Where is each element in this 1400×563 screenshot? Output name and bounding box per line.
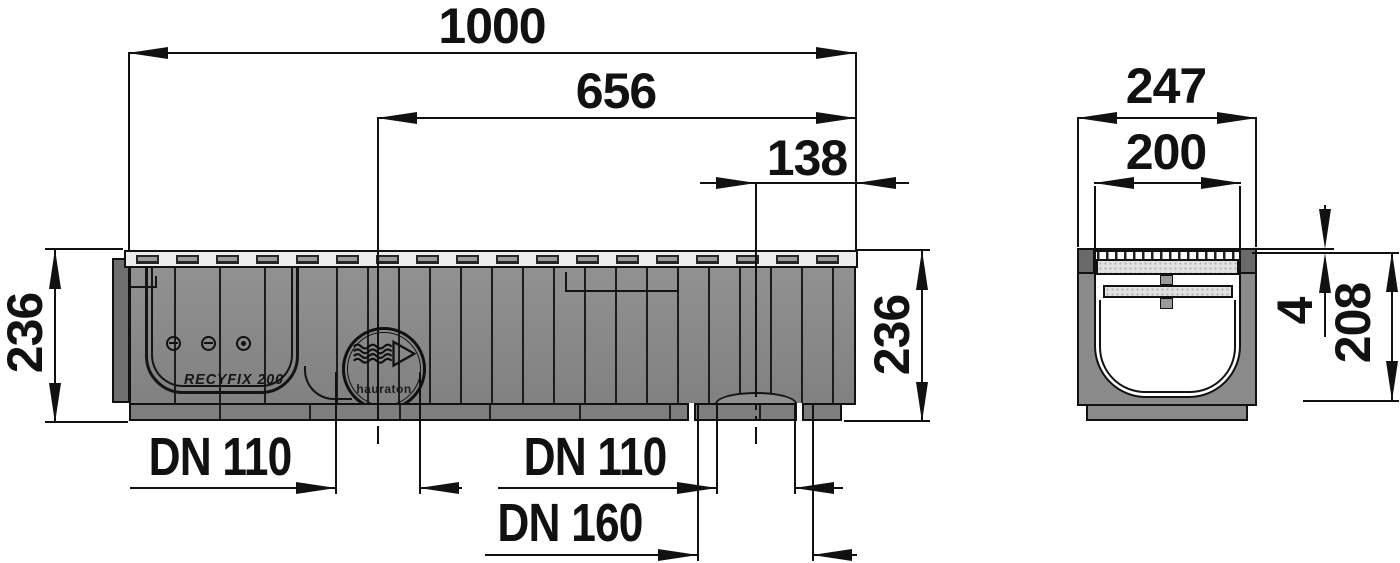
hauraton-logo-text: hauraton [345, 382, 423, 396]
dim-247-label: 247 [1126, 61, 1206, 111]
outlet-centerline-dashed [755, 390, 757, 421]
end-step-outline [131, 276, 157, 288]
arrowhead-icon [49, 249, 61, 289]
arrowhead-icon [49, 383, 61, 423]
arrowhead-icon [812, 549, 852, 561]
screw-slot [169, 342, 178, 344]
dim-200-label: 200 [1126, 127, 1206, 177]
coupling-step-outline [565, 272, 679, 292]
arrowhead-icon [794, 482, 834, 494]
arrowhead-icon [816, 112, 856, 124]
outlet-centerline-right [755, 182, 757, 390]
arrowhead-icon [916, 382, 928, 422]
grate-strip [124, 250, 858, 268]
wave-arrow-icon [350, 339, 420, 375]
dim-208-label: 208 [1328, 283, 1378, 363]
arrowhead-icon [1319, 209, 1331, 249]
dim-236-left-label: 236 [0, 293, 50, 373]
arrowhead-icon [1386, 252, 1398, 292]
arrowhead-icon [1386, 361, 1398, 401]
outlet-centerline-left [377, 117, 379, 421]
technical-drawing-canvas: hauraton RECYFIX 200 [0, 0, 1400, 563]
section-grate-tab [1160, 275, 1173, 285]
base-strip [129, 403, 842, 421]
screw-icon [236, 336, 251, 351]
tick-line [1303, 400, 1399, 402]
dim-total-length-label: 1000 [438, 1, 545, 51]
arrowhead-icon [1201, 177, 1241, 189]
section-liner-line [1099, 300, 1236, 393]
end-cap-left [112, 258, 130, 403]
centerline-tick [755, 427, 757, 444]
extension-line [1077, 119, 1079, 247]
section-grate-teeth [1097, 252, 1238, 259]
recessed-panel-inner-line [151, 266, 293, 387]
section-locking-pin [1160, 298, 1173, 309]
extension-line [335, 372, 337, 494]
arrowhead-icon [916, 250, 928, 290]
section-foot [1086, 404, 1248, 421]
extension-line [419, 372, 421, 494]
product-name-text: RECYFIX 200 [184, 371, 284, 388]
dn110-bottom-label: DN 110 [524, 430, 667, 484]
screw-slot [204, 342, 213, 344]
dim-4-label: 4 [1270, 298, 1320, 325]
screw-dot [241, 341, 246, 346]
section-locking-bar [1103, 285, 1233, 298]
socket-notch-left [687, 403, 696, 421]
arrowhead-icon [1077, 112, 1117, 124]
screw-icon [201, 336, 216, 351]
arrowhead-icon [1217, 112, 1257, 124]
arrowhead-icon [716, 177, 756, 189]
extension-line [1255, 119, 1257, 247]
centerline-tick [377, 426, 379, 444]
base-strip-dividers [131, 405, 840, 419]
arrowhead-icon [816, 47, 856, 59]
extension-line [1239, 186, 1241, 250]
extension-line [128, 52, 130, 250]
extension-line [794, 404, 796, 494]
dn160-label: DN 160 [497, 496, 642, 550]
section-grate [1096, 259, 1239, 275]
hauraton-logo: hauraton [342, 327, 426, 405]
arrowhead-icon [677, 482, 717, 494]
socket-notch-right [795, 403, 804, 421]
dim-656-label: 656 [576, 66, 656, 116]
extension-line [1094, 186, 1096, 250]
arrowhead-icon [419, 482, 459, 494]
arrowhead-icon [856, 177, 896, 189]
grate-slots-inner [138, 257, 848, 261]
dn110-left-label: DN 110 [149, 430, 292, 484]
dim-236-right-label: 236 [867, 295, 917, 375]
section-frame-left [1077, 248, 1095, 274]
dim-138-label: 138 [767, 133, 847, 183]
extension-line [716, 404, 718, 494]
arrowhead-icon [296, 482, 336, 494]
arrowhead-icon [658, 549, 698, 561]
extension-line [855, 52, 857, 250]
arrowhead-icon [377, 112, 417, 124]
screw-icon [166, 336, 181, 351]
arrowhead-icon [128, 47, 168, 59]
